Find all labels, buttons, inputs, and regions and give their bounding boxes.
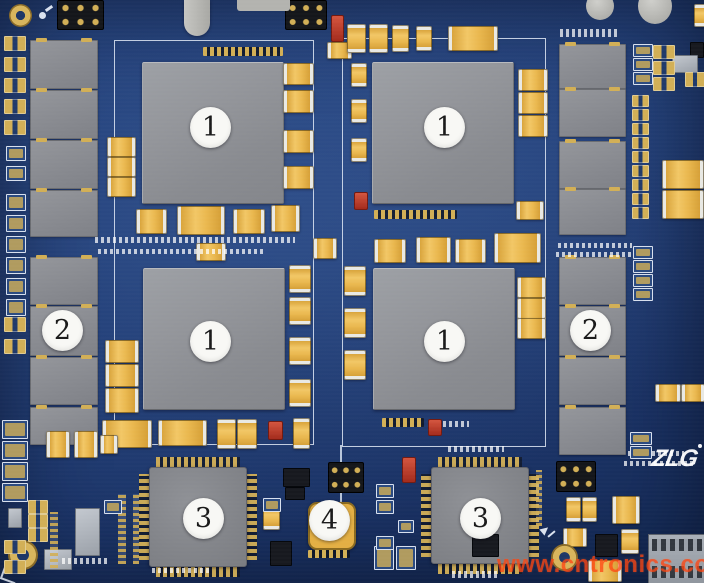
silkscreen-text-row (95, 237, 295, 243)
smd-part (6, 257, 26, 274)
capacitor (351, 138, 367, 162)
capacitor (233, 209, 265, 234)
capacitor (416, 26, 432, 51)
capacitor (351, 99, 367, 123)
capacitor (177, 206, 225, 235)
smd-part (4, 339, 26, 354)
capacitor (107, 177, 136, 197)
smd-module (559, 189, 626, 235)
standoff-tab (184, 0, 210, 36)
callout-4-inductor: 4 (309, 500, 350, 541)
solder-pad-row (308, 550, 350, 558)
capacitor (494, 233, 541, 263)
metal-part (75, 508, 100, 556)
silkscreen-text-row (152, 568, 210, 573)
solder-pad-row (382, 418, 424, 427)
smd-part (632, 193, 649, 205)
capacitor (105, 340, 139, 363)
capacitor (518, 69, 548, 91)
capacitor (313, 238, 337, 259)
smd-part (28, 528, 48, 542)
capacitor (289, 297, 311, 325)
capacitor (283, 90, 314, 113)
smd-part (632, 109, 649, 121)
capacitor (517, 298, 546, 319)
smd-part (4, 560, 26, 574)
capacitor (681, 384, 704, 402)
smd-part (376, 500, 394, 514)
smd-module (559, 257, 626, 305)
smd-module (559, 407, 626, 455)
callout-1-chip-topright: 1 (424, 107, 465, 148)
pin-header (556, 461, 596, 492)
silkscreen-text-row (62, 558, 108, 564)
capacitor (582, 497, 597, 522)
capacitor (293, 418, 310, 449)
capacitor (271, 205, 300, 232)
smd-part (398, 520, 414, 533)
smd-part (6, 215, 26, 232)
red-led (402, 457, 416, 483)
smd-part (632, 95, 649, 107)
callout-1-chip-topleft: 1 (190, 107, 231, 148)
smd-part (632, 207, 649, 219)
capacitor (289, 337, 311, 365)
smd-module (559, 141, 626, 189)
smd-part (633, 288, 653, 301)
screenshot: 1 1 1 1 2 2 3 3 4 www.cntronics.com ZLG (0, 0, 704, 583)
capacitor (136, 209, 167, 234)
smd-part (633, 44, 653, 57)
pin-header (285, 0, 327, 30)
capacitor (518, 92, 548, 114)
smd-part (28, 500, 48, 514)
smd-part (630, 432, 652, 445)
zlg-logo-dot (698, 444, 702, 448)
smd-part (28, 514, 48, 528)
capacitor (448, 26, 498, 51)
smd-module (559, 89, 626, 137)
smd-part (6, 166, 26, 181)
standoff-bar (237, 0, 290, 11)
pcb-photo: 1 1 1 1 2 2 3 3 4 www.cntronics.com ZLG (0, 0, 704, 583)
capacitor (516, 201, 544, 220)
smd-part (2, 420, 28, 439)
capacitor (289, 265, 311, 293)
smd-part (653, 61, 675, 75)
metal-part (8, 508, 22, 528)
smd-module (30, 357, 98, 405)
smd-module (559, 44, 626, 89)
smd-part (6, 146, 26, 161)
smd-module (559, 357, 626, 405)
capacitor (655, 384, 681, 402)
red-led (428, 419, 442, 436)
smd-part (632, 165, 649, 177)
smd-part (396, 546, 416, 570)
capacitor (455, 239, 486, 263)
capacitor (374, 239, 406, 263)
capacitor (344, 350, 366, 380)
callout-2-right-bank: 2 (570, 310, 611, 351)
smd-part (6, 299, 26, 316)
standoff-round (586, 0, 614, 20)
smd-part (633, 274, 653, 287)
smd-part (632, 123, 649, 135)
smd-part (4, 317, 26, 332)
capacitor (105, 388, 139, 413)
smd-part (685, 72, 704, 87)
silkscreen-text-row (443, 421, 469, 427)
smd-part (633, 58, 653, 71)
black-ic (270, 541, 292, 566)
capacitor (612, 496, 640, 524)
capacitor (662, 190, 704, 219)
capacitor (74, 431, 98, 458)
smd-part (376, 484, 394, 498)
smd-module (30, 140, 98, 189)
smd-part (4, 99, 26, 114)
capacitor (289, 379, 311, 407)
standoff-round (638, 0, 672, 24)
smd-part (653, 77, 675, 91)
smd-part (630, 446, 652, 459)
metal-part (672, 55, 698, 73)
smd-part (632, 137, 649, 149)
red-led (354, 192, 368, 210)
capacitor (100, 435, 118, 454)
capacitor (517, 277, 546, 298)
smd-part (6, 194, 26, 211)
silkscreen-text-row (98, 249, 266, 254)
capacitor (694, 4, 704, 27)
silkscreen-text-row (556, 252, 636, 257)
callout-3-qfp-left: 3 (183, 498, 224, 539)
smd-part (632, 179, 649, 191)
smd-part (4, 78, 26, 93)
pin-header (57, 0, 104, 30)
smd-part (104, 500, 122, 514)
capacitor (107, 157, 136, 177)
capacitor (344, 266, 366, 296)
callout-1-chip-midright: 1 (424, 321, 465, 362)
smd-part (633, 260, 653, 273)
zlg-logo: ZLG (650, 445, 700, 473)
capacitor (392, 25, 409, 52)
capacitor (351, 63, 367, 87)
smd-module (30, 190, 98, 237)
smd-part (2, 462, 28, 481)
capacitor (237, 419, 257, 449)
smd-module (30, 90, 98, 139)
smd-part (4, 540, 26, 554)
smd-part (263, 498, 281, 512)
capacitor (344, 308, 366, 338)
silkscreen-text-row (452, 571, 498, 578)
silkscreen-text-row (558, 243, 632, 248)
smd-part (4, 120, 26, 135)
silkscreen-symbol-icon (38, 6, 52, 20)
capacitor (518, 115, 548, 137)
solder-pad-row (374, 210, 457, 219)
smd-part (632, 151, 649, 163)
capacitor (46, 431, 70, 458)
silkscreen-arrow-icon (541, 526, 557, 540)
via-hole (9, 4, 32, 27)
capacitor (662, 160, 704, 189)
smd-part (633, 72, 653, 85)
smd-part (6, 278, 26, 295)
smd-part (2, 483, 28, 502)
capacitor (566, 497, 581, 522)
smd-module (30, 257, 98, 305)
solder-pad-row (203, 47, 283, 56)
smd-part (4, 57, 26, 72)
capacitor (416, 237, 451, 263)
callout-3-qfp-right: 3 (460, 498, 501, 539)
watermark: www.cntronics.com (497, 551, 704, 579)
capacitor (283, 63, 314, 85)
silkscreen-text-row (448, 446, 504, 452)
capacitor (217, 419, 236, 449)
qfp-pins-right (246, 474, 257, 560)
black-ic (285, 487, 305, 500)
smd-part (376, 536, 394, 550)
capacitor (107, 137, 136, 157)
red-led (268, 421, 283, 440)
red-led (331, 15, 344, 42)
capacitor (347, 24, 366, 53)
capacitor (369, 24, 388, 53)
solder-pad-column (536, 470, 542, 526)
smd-part (6, 236, 26, 253)
capacitor (158, 420, 207, 446)
smd-module (30, 40, 98, 89)
capacitor (105, 364, 139, 387)
smd-part (4, 36, 26, 51)
silkscreen-text-row (560, 29, 618, 37)
solder-pad-column (133, 494, 139, 564)
pin-header (328, 462, 364, 493)
capacitor (283, 130, 314, 153)
callout-2-left-bank: 2 (42, 310, 83, 351)
capacitor (283, 166, 314, 189)
callout-1-chip-midleft: 1 (190, 321, 231, 362)
smd-part (653, 45, 675, 59)
smd-part (633, 246, 653, 259)
smd-part (2, 441, 28, 460)
capacitor (517, 318, 546, 339)
black-ic (283, 468, 310, 487)
solder-pad-column (50, 512, 58, 568)
